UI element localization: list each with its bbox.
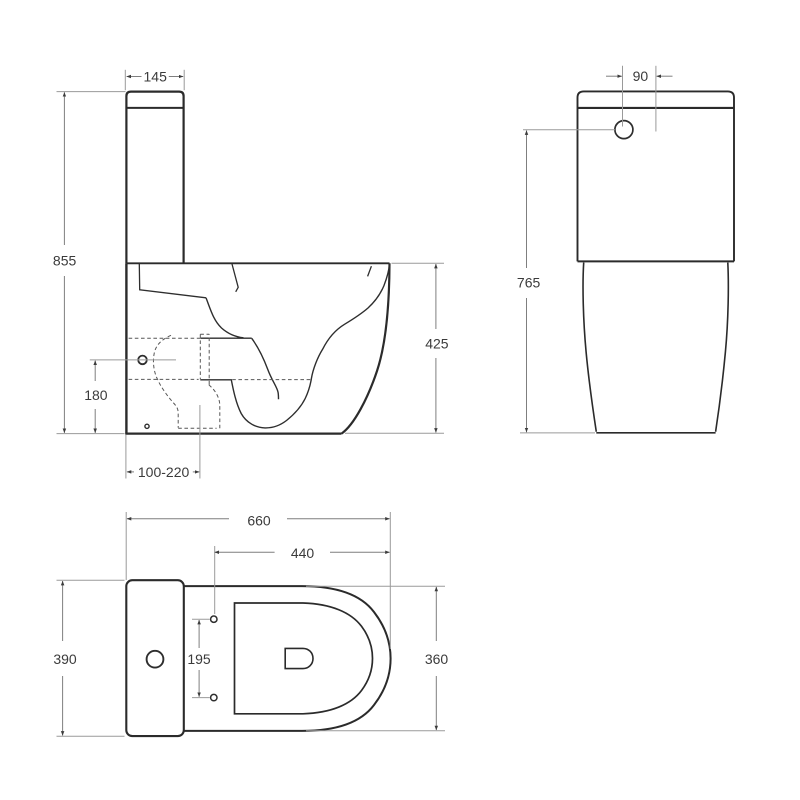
svg-text:765: 765	[517, 275, 541, 291]
svg-text:100-220: 100-220	[138, 464, 190, 480]
svg-text:855: 855	[53, 253, 77, 269]
svg-text:360: 360	[425, 651, 449, 667]
svg-text:145: 145	[144, 69, 168, 85]
svg-text:660: 660	[247, 512, 271, 528]
svg-text:440: 440	[291, 545, 315, 561]
svg-text:180: 180	[84, 387, 108, 403]
svg-text:90: 90	[633, 68, 649, 84]
svg-text:425: 425	[425, 336, 449, 352]
svg-text:195: 195	[187, 651, 211, 667]
svg-text:390: 390	[53, 651, 77, 667]
